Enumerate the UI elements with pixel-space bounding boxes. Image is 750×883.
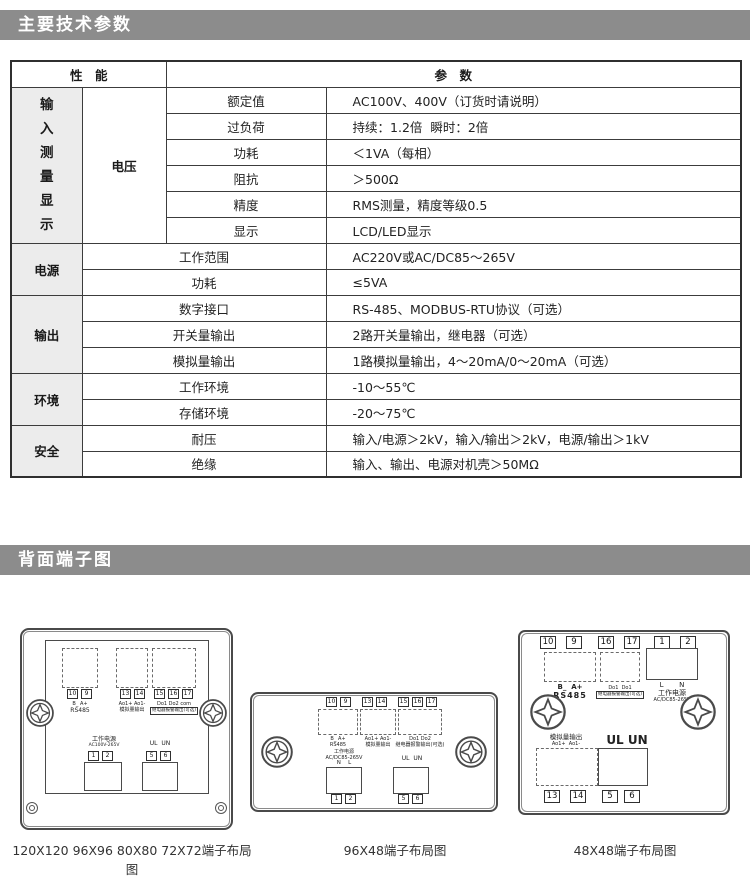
diagram-caption-large: 120X120 96X96 80X80 72X72端子布局图	[8, 840, 256, 878]
terminal-square: 16	[412, 697, 423, 707]
screw-icon	[680, 694, 716, 730]
param-cell: 过负荷	[166, 113, 326, 139]
group-label-output: 输出	[11, 295, 82, 373]
value-cell: ＜1VA（每相）	[326, 139, 741, 165]
relay-dashed-area	[398, 709, 442, 735]
param-cell: 阻抗	[166, 165, 326, 191]
param-cell: 绝缘	[82, 451, 326, 477]
power-pins: N L	[324, 760, 364, 767]
voltage-terminal-block	[142, 762, 178, 791]
section-header-specs: 主要技术参数	[0, 10, 750, 40]
voltage-input-label: UL UN	[600, 733, 654, 748]
group-label-power: 电源	[11, 243, 82, 295]
power-terminal-block	[84, 762, 122, 791]
terminal-square: 17	[426, 697, 437, 707]
group-label-safety: 安全	[11, 425, 82, 477]
value-cell: RS-485、MODBUS-RTU协议（可选）	[326, 295, 741, 321]
table-row: 电源 工作范围 AC220V或AC/DC85～265V	[11, 243, 741, 269]
table-header-row: 性 能 参 数	[11, 61, 741, 87]
param-cell: 数字接口	[82, 295, 326, 321]
terminal-square: 15	[154, 689, 165, 699]
power-terminal-block	[326, 767, 362, 794]
screw-icon	[26, 699, 54, 727]
terminal-square: 5	[146, 751, 157, 761]
header-performance: 性 能	[11, 61, 166, 87]
value-cell: 输入、输出、电源对机壳＞50MΩ	[326, 451, 741, 477]
relay-dashed-area	[152, 648, 196, 688]
terminal-square: 10	[326, 697, 337, 707]
header-parameter: 参 数	[166, 61, 741, 87]
rs485-dashed-area	[62, 648, 98, 688]
analog-pins: Ao1+ Ao1-	[538, 741, 594, 747]
terminal-square: 10	[67, 689, 78, 699]
analog-label: 模拟量输出	[538, 733, 594, 741]
terminal-square: 6	[412, 794, 423, 804]
terminal-square: 1	[331, 794, 342, 804]
terminal-square: 15	[398, 697, 409, 707]
spec-table: 性 能 参 数 输入测量显示 电压 额定值 AC100V、400V（订货时请说明…	[10, 60, 742, 478]
section-title: 主要技术参数	[18, 15, 132, 35]
voltage-input-label: UL UN	[138, 740, 182, 748]
relay-label: 继电器报警输出(可选)	[596, 691, 644, 699]
terminal-square: 13	[544, 790, 560, 803]
value-cell: AC220V或AC/DC85～265V	[326, 243, 741, 269]
rs485-dashed-area	[318, 709, 358, 735]
table-row: 输入测量显示 电压 额定值 AC100V、400V（订货时请说明）	[11, 87, 741, 113]
voltage-terminal-block	[393, 767, 429, 794]
param-cell: 模拟量输出	[82, 347, 326, 373]
value-cell: ＞500Ω	[326, 165, 741, 191]
analog-dashed-area	[536, 748, 598, 786]
value-cell: LCD/LED显示	[326, 217, 741, 243]
terminal-square: 9	[340, 697, 351, 707]
screw-icon	[261, 736, 293, 768]
diagram-caption-96x48: 96X48端子布局图	[300, 840, 490, 859]
table-row: 环境 工作环境 -10～55℃	[11, 373, 741, 399]
table-row: 安全 耐压 输入/电源＞2kV，输入/输出＞2kV，电源/输出＞1kV	[11, 425, 741, 451]
group-label-environment: 环境	[11, 373, 82, 425]
table-row: 输出 数字接口 RS-485、MODBUS-RTU协议（可选）	[11, 295, 741, 321]
analog-dashed-area	[360, 709, 396, 735]
terminal-square: 13	[362, 697, 373, 707]
table-row: 绝缘 输入、输出、电源对机壳＞50MΩ	[11, 451, 741, 477]
relay-label: 继电器报警输出(可选)	[148, 707, 200, 715]
power-range: AC100V-265V	[74, 743, 134, 749]
terminal-square: 17	[624, 636, 640, 649]
terminal-square: 10	[540, 636, 556, 649]
screw-icon	[455, 736, 487, 768]
value-cell: -20～75℃	[326, 399, 741, 425]
terminal-square: 14	[134, 689, 145, 699]
rs485-dashed-area	[544, 652, 596, 682]
param-cell: 功耗	[166, 139, 326, 165]
analog-label: 模拟量输出	[112, 707, 152, 713]
terminal-square: 6	[624, 790, 640, 803]
param-cell: 精度	[166, 191, 326, 217]
rs485-label: RS485	[60, 707, 100, 715]
terminal-square: 2	[345, 794, 356, 804]
rs485-label: B_ A+ RS485	[314, 736, 362, 749]
terminal-square: 1	[88, 751, 99, 761]
screw-icon	[530, 694, 566, 730]
value-cell: 1路模拟量输出，4～20mA/0～20mA（可选）	[326, 347, 741, 373]
value-cell: AC100V、400V（订货时请说明）	[326, 87, 741, 113]
terminal-square: 5	[398, 794, 409, 804]
terminal-square: 6	[160, 751, 171, 761]
section-header-terminals: 背面端子图	[0, 545, 750, 575]
relay-dashed-area	[600, 652, 640, 682]
table-row: 模拟量输出 1路模拟量输出，4～20mA/0～20mA（可选）	[11, 347, 741, 373]
param-cell: 耐压	[82, 425, 326, 451]
sub-label-voltage: 电压	[82, 87, 166, 243]
value-cell: 持续：1.2倍 瞬时：2倍	[326, 113, 741, 139]
terminal-square: 14	[570, 790, 586, 803]
terminal-square: 5	[602, 790, 618, 803]
param-cell: 功耗	[82, 269, 326, 295]
voltage-input-label: UL UN	[390, 755, 434, 763]
value-cell: 2路开关量输出，继电器（可选）	[326, 321, 741, 347]
analog-dashed-area	[116, 648, 148, 688]
voltage-terminal-block	[598, 748, 648, 786]
value-cell: ≤5VA	[326, 269, 741, 295]
power-terminal-block	[646, 648, 698, 680]
terminal-square: 2	[102, 751, 113, 761]
terminal-square: 9	[81, 689, 92, 699]
value-cell: -10～55℃	[326, 373, 741, 399]
group-label-input: 输入测量显示	[11, 87, 82, 243]
mounting-hole	[215, 802, 227, 814]
value-cell: RMS测量，精度等级0.5	[326, 191, 741, 217]
datasheet-page: 主要技术参数 性 能 参 数 输入测量显示 电压 额定值 AC100V、400V…	[0, 0, 750, 883]
table-row: 功耗 ≤5VA	[11, 269, 741, 295]
terminal-square: 14	[376, 697, 387, 707]
param-cell: 额定值	[166, 87, 326, 113]
table-row: 开关量输出 2路开关量输出，继电器（可选）	[11, 321, 741, 347]
terminal-square: 13	[120, 689, 131, 699]
diagram-caption-48x48: 48X48端子布局图	[545, 840, 705, 859]
screw-icon	[199, 699, 227, 727]
terminal-square: 16	[598, 636, 614, 649]
section-title: 背面端子图	[18, 550, 113, 570]
terminal-diagram-large: 10 9 13 14 15 16 17 B_ A+ RS485 Ao1+ Ao1…	[20, 628, 233, 830]
param-cell: 工作环境	[82, 373, 326, 399]
terminal-diagram-48x48: 10 9 16 17 1 2 B_ A+ RS485 Do1 Do1 继电器报警…	[518, 630, 730, 815]
terminal-square: 17	[182, 689, 193, 699]
param-cell: 开关量输出	[82, 321, 326, 347]
param-cell: 存储环境	[82, 399, 326, 425]
table-row: 存储环境 -20～75℃	[11, 399, 741, 425]
terminal-square: 9	[566, 636, 582, 649]
value-cell: 输入/电源＞2kV，输入/输出＞2kV，电源/输出＞1kV	[326, 425, 741, 451]
relay-label: Do1 Do2 继电器报警输出(可选)	[394, 736, 446, 749]
param-cell: 工作范围	[82, 243, 326, 269]
mounting-hole	[26, 802, 38, 814]
param-cell: 显示	[166, 217, 326, 243]
terminal-diagram-96x48: 10 9 13 14 15 16 17 B_ A+ RS485 Ao1+ Ao1…	[250, 692, 498, 812]
terminal-square: 16	[168, 689, 179, 699]
